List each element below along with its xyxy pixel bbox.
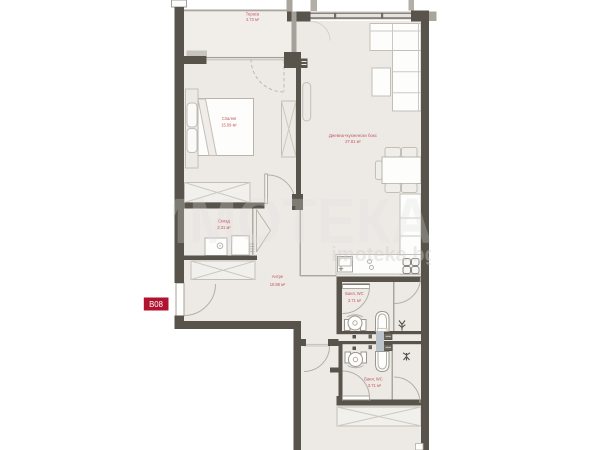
svg-text:Баня, WC: Баня, WC	[345, 291, 364, 296]
svg-text:Антре: Антре	[272, 274, 284, 279]
svg-text:10.88 м²: 10.88 м²	[270, 282, 286, 287]
svg-text:imoteka.bg: imoteka.bg	[331, 244, 437, 266]
svg-text:2.31 м²: 2.31 м²	[217, 225, 231, 230]
svg-text:Спалня: Спалня	[222, 116, 236, 121]
svg-text:15.09 м²: 15.09 м²	[221, 122, 237, 127]
svg-text:Баня, WC: Баня, WC	[364, 377, 383, 382]
svg-text:Склад: Склад	[218, 219, 230, 224]
svg-text:3.71 м²: 3.71 м²	[368, 383, 382, 388]
svg-text:Тераса: Тераса	[246, 11, 260, 16]
svg-text:3.71 м²: 3.71 м²	[348, 298, 362, 303]
svg-text:Дневна+кухненски бокс: Дневна+кухненски бокс	[329, 133, 378, 138]
svg-text:B08: B08	[149, 300, 163, 309]
svg-text:4.73 м²: 4.73 м²	[246, 17, 260, 22]
svg-text:27.81 м²: 27.81 м²	[345, 139, 361, 144]
